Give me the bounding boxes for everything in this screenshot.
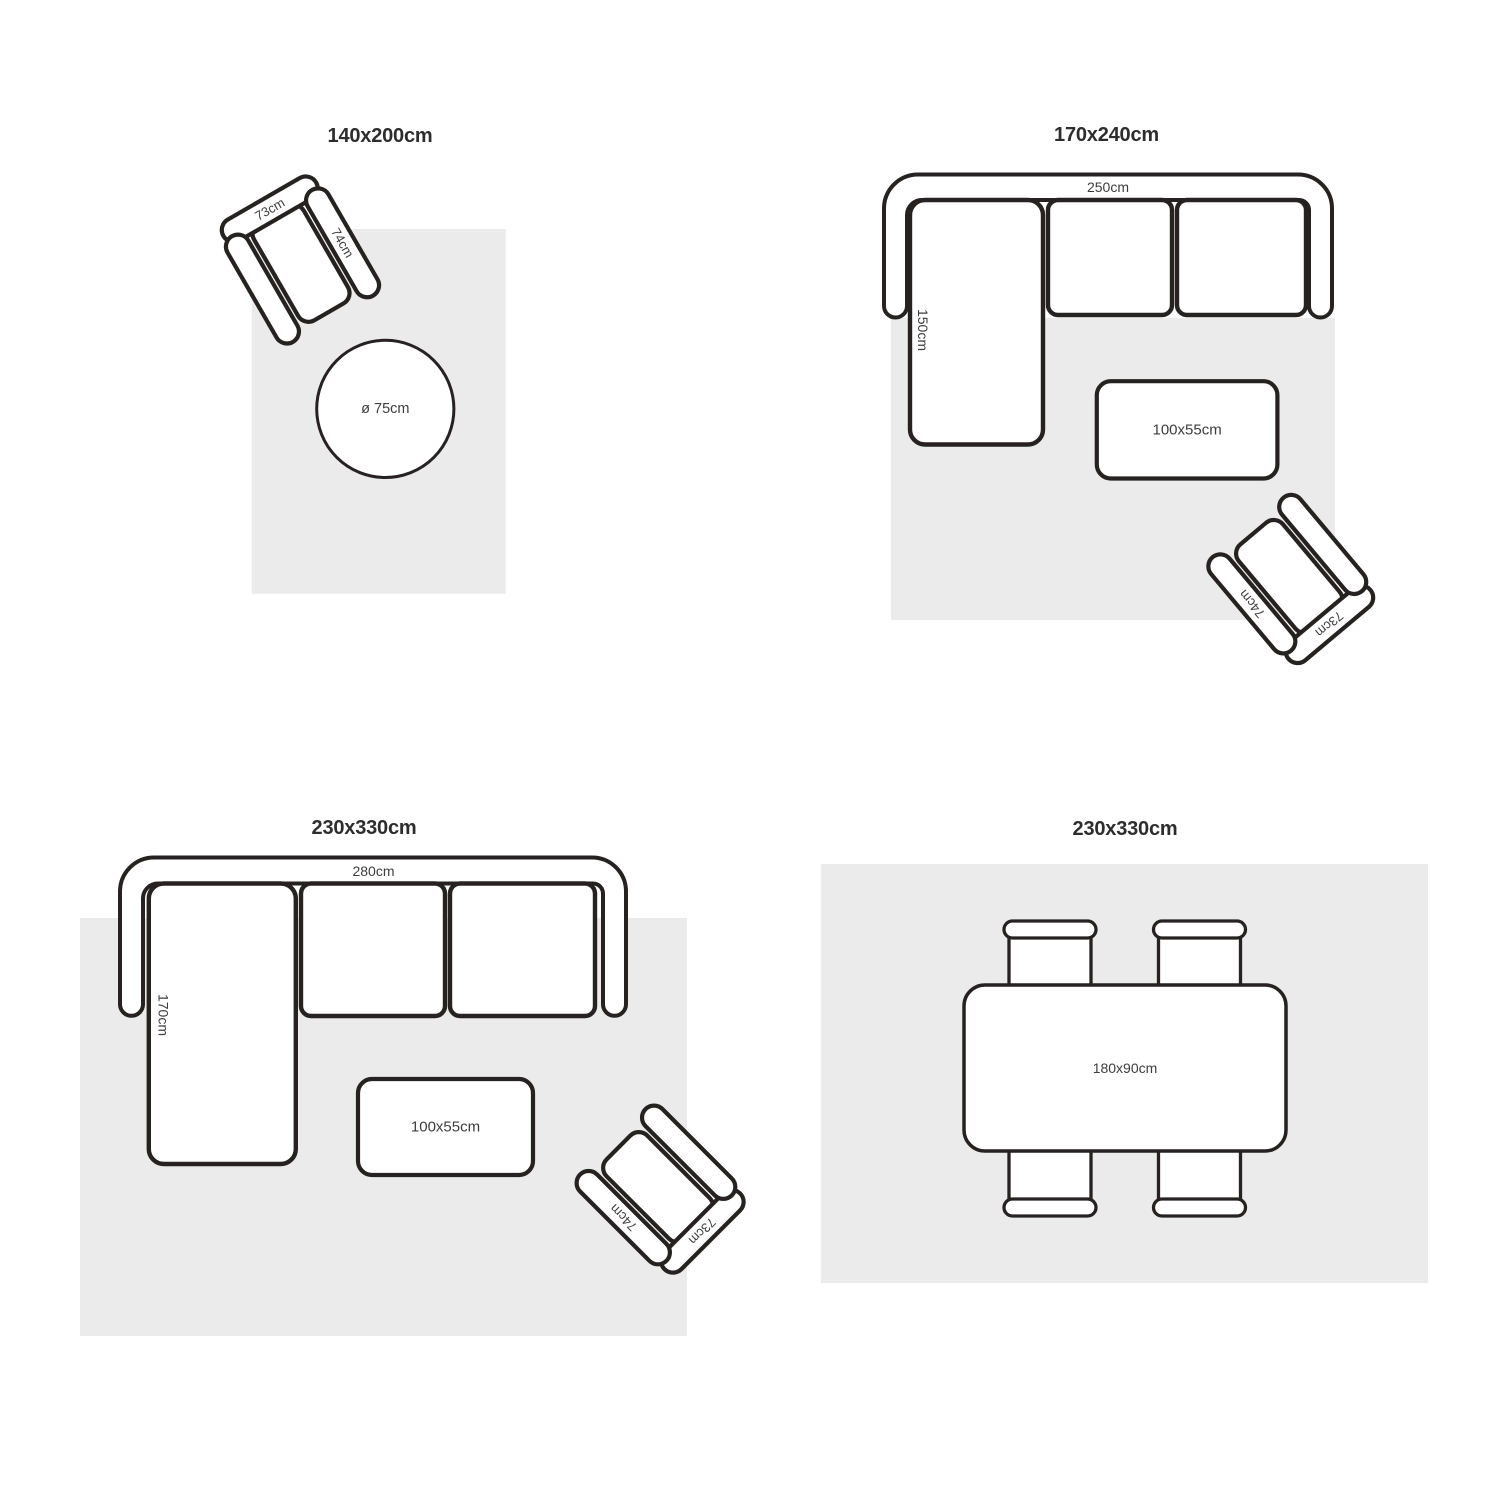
svg-text:140x200cm: 140x200cm [328,125,433,147]
svg-text:100x55cm: 100x55cm [1152,422,1221,439]
svg-text:230x330cm: 230x330cm [1073,818,1178,840]
svg-text:280cm: 280cm [352,863,394,879]
svg-text:150cm: 150cm [915,309,931,351]
svg-text:230x330cm: 230x330cm [312,817,417,839]
svg-text:ø 75cm: ø 75cm [361,401,409,417]
svg-text:100x55cm: 100x55cm [411,1119,480,1136]
svg-text:170x240cm: 170x240cm [1054,124,1159,146]
svg-text:250cm: 250cm [1087,179,1129,195]
svg-text:180x90cm: 180x90cm [1093,1060,1158,1076]
svg-text:170cm: 170cm [156,994,172,1036]
